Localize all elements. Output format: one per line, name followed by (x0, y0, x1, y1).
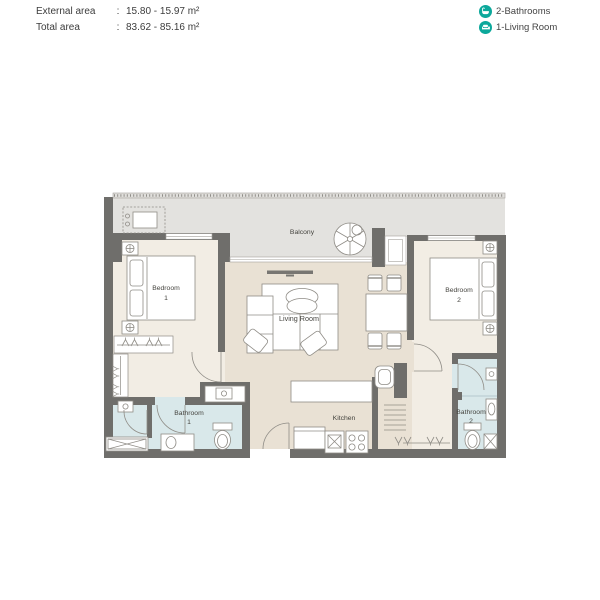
shower-icon (484, 434, 497, 449)
balcony-door (385, 236, 406, 265)
balcony-railing (113, 193, 505, 198)
washer-icon (106, 437, 148, 451)
stove-icon (346, 431, 368, 453)
living-sliding-window (230, 257, 372, 262)
toilet-1-icon (213, 423, 232, 450)
bathroom1-label: Bathroom (174, 410, 204, 417)
balcony-table-icon (334, 223, 366, 255)
kitchen-label: Kitchen (333, 415, 356, 422)
kitchen-island (291, 381, 372, 402)
bedroom1-label: Bedroom (152, 285, 180, 292)
bathroom2-number: 2 (469, 418, 473, 425)
bath-vanity-icon (161, 434, 194, 451)
floor-plan: Balcony Bedroom 1 (0, 0, 600, 600)
bedroom2-number: 2 (457, 297, 461, 304)
kitchen-cabinet (294, 427, 325, 449)
toilet-2-icon (464, 423, 481, 450)
bedroom2-label: Bedroom (445, 287, 473, 294)
living-room-label: Living Room (279, 314, 319, 323)
bathroom2-label: Bathroom (456, 409, 486, 416)
entrance-opening (250, 449, 290, 458)
bedroom1-window (166, 234, 212, 240)
bathroom1-number: 1 (187, 419, 191, 426)
kitchen-sink-icon (325, 431, 344, 453)
balcony-label: Balcony (290, 229, 315, 236)
bedroom2-window (428, 236, 475, 241)
bedroom1-number: 1 (164, 295, 168, 302)
